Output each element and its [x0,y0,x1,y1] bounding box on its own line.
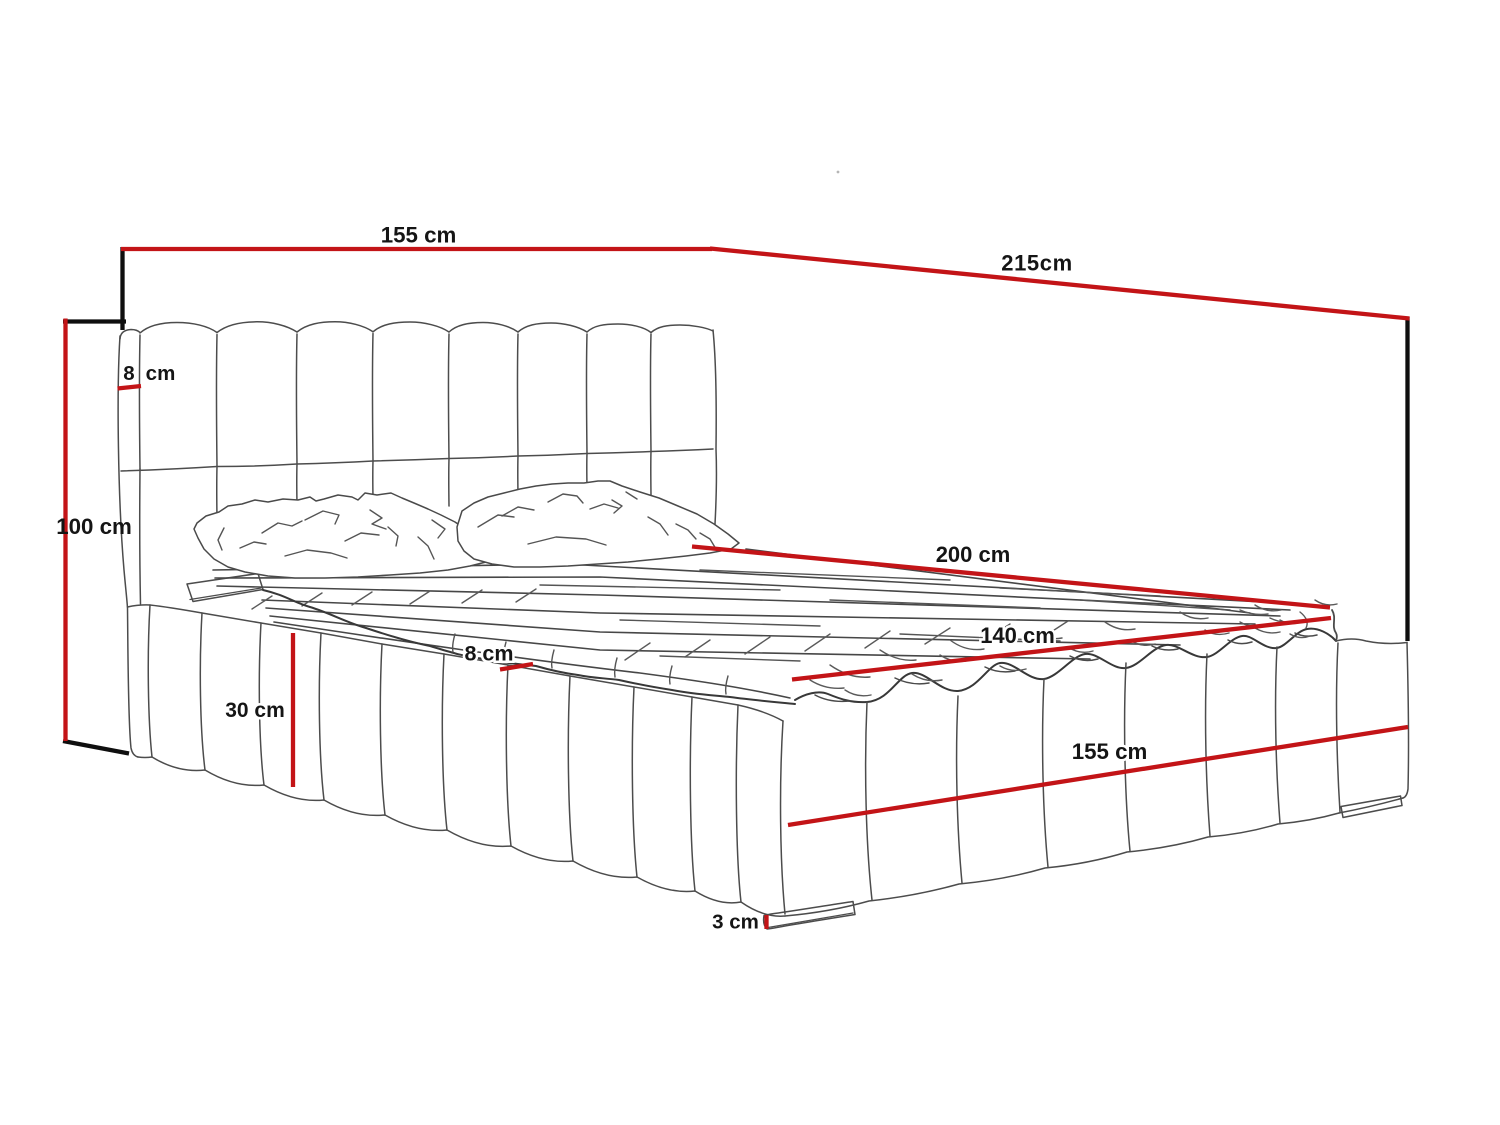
svg-text:155 cm: 155 cm [1072,739,1148,764]
svg-text:140 cm: 140 cm [980,623,1055,648]
svg-text:cm: cm [146,362,176,385]
svg-text:215cm: 215cm [1001,251,1073,276]
svg-text:200 cm: 200 cm [936,542,1011,567]
svg-text:3 cm: 3 cm [712,911,759,934]
svg-text:30 cm: 30 cm [225,699,285,722]
svg-text:8: 8 [123,362,134,385]
svg-text:100 cm: 100 cm [56,514,132,539]
svg-text:8 cm: 8 cm [464,642,513,666]
svg-text:155 cm: 155 cm [381,223,457,248]
